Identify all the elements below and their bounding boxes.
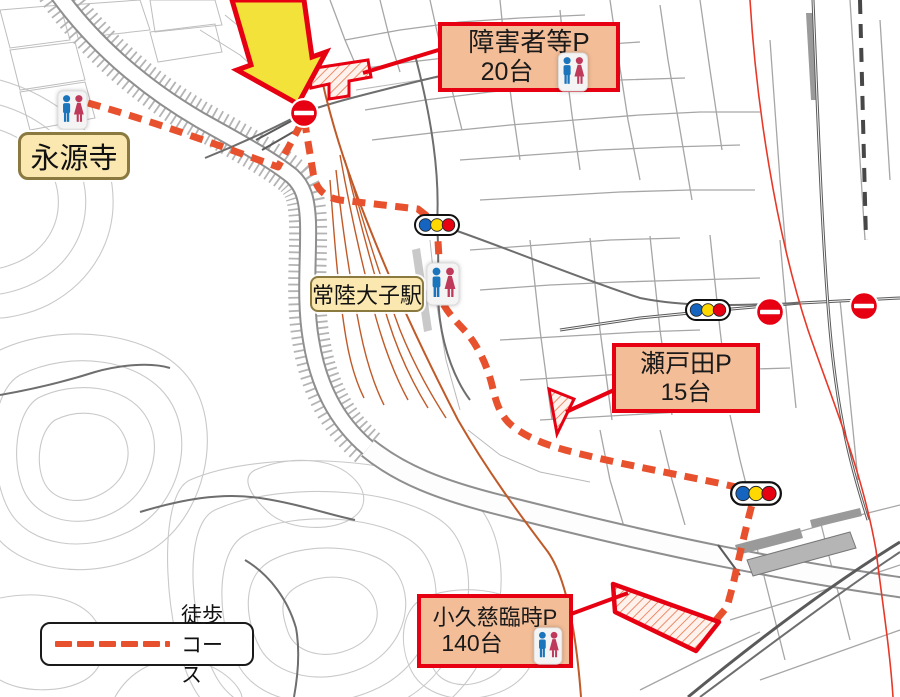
restroom-icon [556,52,590,92]
callout-disabled-parking: 障害者等P 20台 [438,22,620,92]
temple-label: 永源寺 [18,132,130,180]
restroom-icon [56,90,89,130]
no-entry-icon [848,290,880,322]
setoda-parking-name: 瀬戸田P [640,350,732,379]
restroom-icon [531,627,565,665]
no-entry-icon [754,296,786,328]
restroom-icon [426,261,460,307]
station-name: 常陸大子駅 [312,278,422,310]
callout-setoda-parking: 瀬戸田P 15台 [612,343,760,413]
traffic-signal-icon [730,481,782,506]
disabled-parking-capacity: 20台 [481,58,534,87]
temple-name: 永源寺 [30,135,117,177]
walk-course-dash-sample [55,641,170,648]
parking-guide-map: 障害者等P 20台 瀬戸田P 15台 小久慈臨時P 140台 永源寺 常陸大子駅… [0,0,900,697]
legend-box: 徒歩コース [40,622,254,666]
traffic-signal-icon [414,214,460,236]
station-label: 常陸大子駅 [310,276,424,312]
legend-walk-course-label: 徒歩コース [181,599,239,689]
traffic-signal-icon [685,299,731,321]
base-map-graphics [0,0,900,697]
okuji-parking-area [613,584,719,651]
major-roads [0,0,900,697]
setoda-parking-capacity: 15台 [661,379,712,407]
okuji-parking-capacity: 140台 [441,630,502,656]
no-entry-icon [288,97,320,129]
